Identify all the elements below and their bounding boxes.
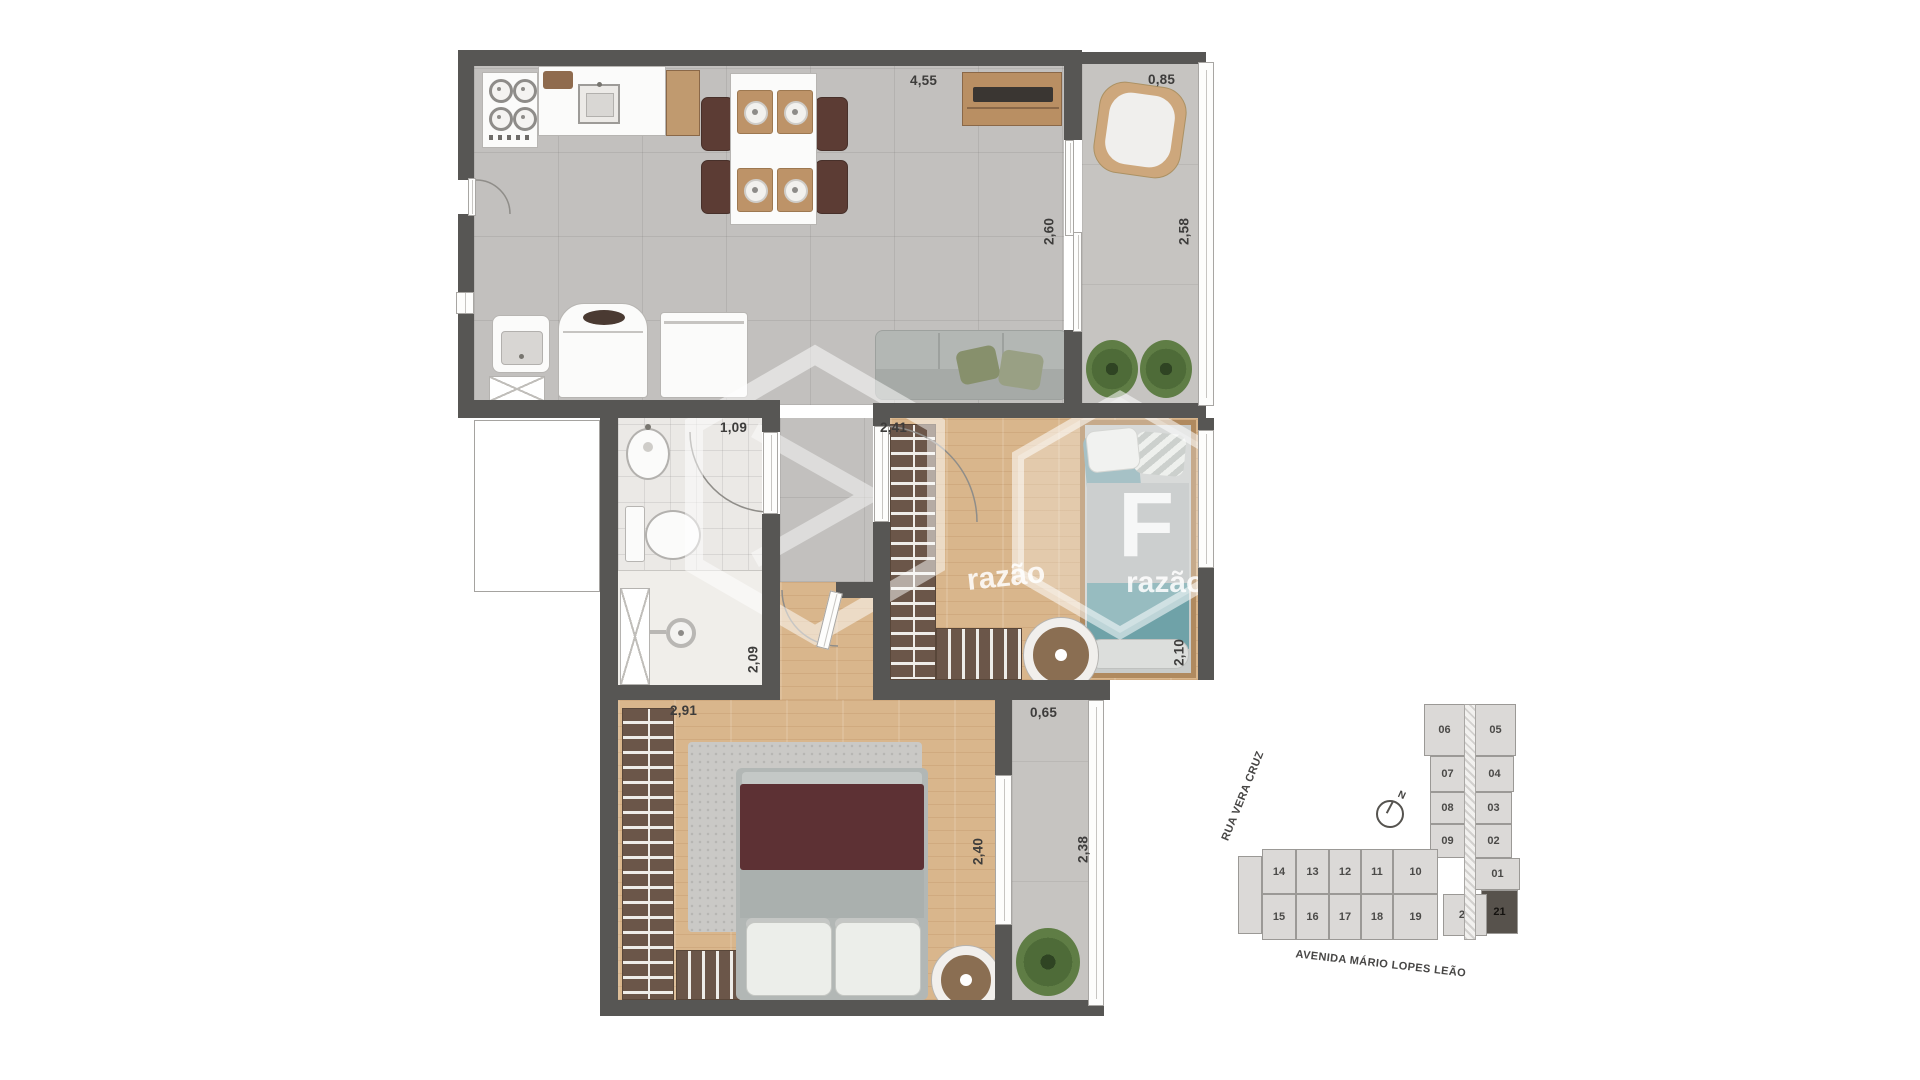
wall-left-upper: [458, 50, 474, 180]
balcony-bottom-plant: [1016, 928, 1080, 996]
laundry-cabinet: [489, 376, 545, 402]
wall-slider-stub-top: [1064, 66, 1082, 140]
bedroom2-dresser: [936, 628, 1022, 680]
dimension-label: 2,38: [1076, 829, 1091, 871]
keyplan-unit-06: 06: [1424, 704, 1465, 756]
shower-arm: [650, 630, 666, 634]
floor-plan-page: 4,55 0,85 2,60 2,58 1,09 2,41 2,09 2,10 …: [0, 0, 1920, 1080]
keyplan-unit-04: 04: [1475, 756, 1514, 792]
keyplan-unit-08: 08: [1430, 792, 1465, 824]
keyplan-unit-10: 10: [1393, 849, 1438, 894]
balcony-plant: [1140, 340, 1192, 398]
bathroom-sink: [626, 428, 670, 480]
duct-shaft: [620, 588, 650, 685]
lightwell-void: [474, 420, 600, 592]
keyplan-unit-13: 13: [1296, 849, 1329, 894]
wall-bathroom-bottom: [600, 685, 780, 700]
bedroom2-wardrobe: [890, 424, 936, 680]
keyplan-unit-17: 17: [1329, 894, 1361, 940]
wall-bathroom-right-a: [762, 418, 780, 432]
keyplan-unit-18: 18: [1361, 894, 1393, 940]
toilet-bowl: [645, 510, 701, 560]
keyplan-unit-16: 16: [1296, 894, 1329, 940]
tower-core: [1464, 704, 1476, 940]
balcony-top-railing: [1198, 62, 1214, 406]
master-chest: [676, 950, 740, 1000]
entry-door-leaf: [468, 178, 476, 216]
master-double-bed: [736, 768, 928, 1000]
keyplan-unit-14: 14: [1262, 849, 1296, 894]
wall-top-balcony: [1082, 52, 1206, 64]
kitchen-sink: [578, 84, 620, 124]
dimension-label: 0,65: [1030, 705, 1057, 720]
cutting-board: [543, 71, 573, 89]
bathroom-door-leaf: [763, 432, 778, 514]
dimension-label: 4,55: [910, 73, 937, 88]
dimension-label: 2,09: [746, 639, 761, 681]
wall-mid-left: [458, 400, 780, 418]
balcony-armchair: [1090, 78, 1190, 181]
wall-slider-stub-bottom: [1064, 330, 1082, 405]
keyplan-unit-03: 03: [1475, 792, 1512, 824]
wall-bottom: [600, 1000, 1104, 1016]
laundry-tank: [492, 315, 550, 373]
dimension-label: 0,85: [1148, 72, 1175, 87]
dining-chair: [815, 160, 848, 214]
wall-bedroom2-left-b: [873, 522, 890, 700]
living-balcony-slider-panel-2: [1073, 232, 1082, 332]
toilet-tank: [625, 506, 645, 562]
dimension-label: 2,60: [1042, 211, 1057, 253]
keyplan-unit-11: 11: [1361, 849, 1393, 894]
dimension-label: 2,41: [880, 420, 907, 435]
shower-head: [666, 618, 696, 648]
keyplan-unit-02: 02: [1475, 824, 1512, 858]
living-balcony-slider-panel-1: [1065, 140, 1074, 236]
dining-table: [730, 73, 817, 225]
wall-bedroom2-bottom: [873, 680, 1110, 700]
keyplan-unit-19: 19: [1393, 894, 1438, 940]
washing-machine: [558, 303, 648, 398]
keyplan-unit-05: 05: [1475, 704, 1516, 756]
service-hatch: [456, 292, 474, 314]
street-avenida-mario-lopes-leao: AVENIDA MÁRIO LOPES LEÃO: [1295, 948, 1467, 979]
dimension-label: 2,10: [1172, 632, 1187, 674]
hallway-floor: [780, 418, 873, 582]
wall-mid-right: [873, 403, 1206, 418]
master-wardrobe: [622, 708, 674, 1000]
dishwasher: [660, 312, 748, 398]
north-label: N: [1396, 789, 1407, 802]
wall-west-spine: [600, 418, 618, 1010]
stove: [482, 72, 538, 148]
dimension-label: 2,40: [971, 831, 986, 873]
keyplan-unit-01: 01: [1475, 858, 1520, 890]
bedroom2-door-leaf: [874, 426, 889, 522]
keyplan-unit-07: 07: [1430, 756, 1465, 792]
north-arrow-icon: [1376, 800, 1404, 828]
keyplan-unit-15: 15: [1262, 894, 1296, 940]
tv-console: [962, 72, 1062, 126]
bedroom2-window: [1198, 430, 1214, 568]
master-balcony-slider: [995, 775, 1012, 925]
dimension-label: 1,09: [720, 420, 747, 435]
keyplan-unit-12: 12: [1329, 849, 1361, 894]
dimension-label: 2,58: [1177, 211, 1192, 253]
kitchen-shelf: [666, 70, 700, 136]
key-plan: 06 05 07 04 08 03 09 02 01 21 14 13 12 1…: [1225, 690, 1560, 990]
keyplan-stair-block: [1238, 856, 1262, 934]
wall-top-living: [458, 50, 1082, 66]
dining-chair: [815, 97, 848, 151]
dimension-label: 2,91: [670, 703, 697, 718]
balcony-plant: [1086, 340, 1138, 398]
wall-bathroom-right-b: [762, 514, 780, 700]
sofa-pillow: [997, 349, 1044, 391]
